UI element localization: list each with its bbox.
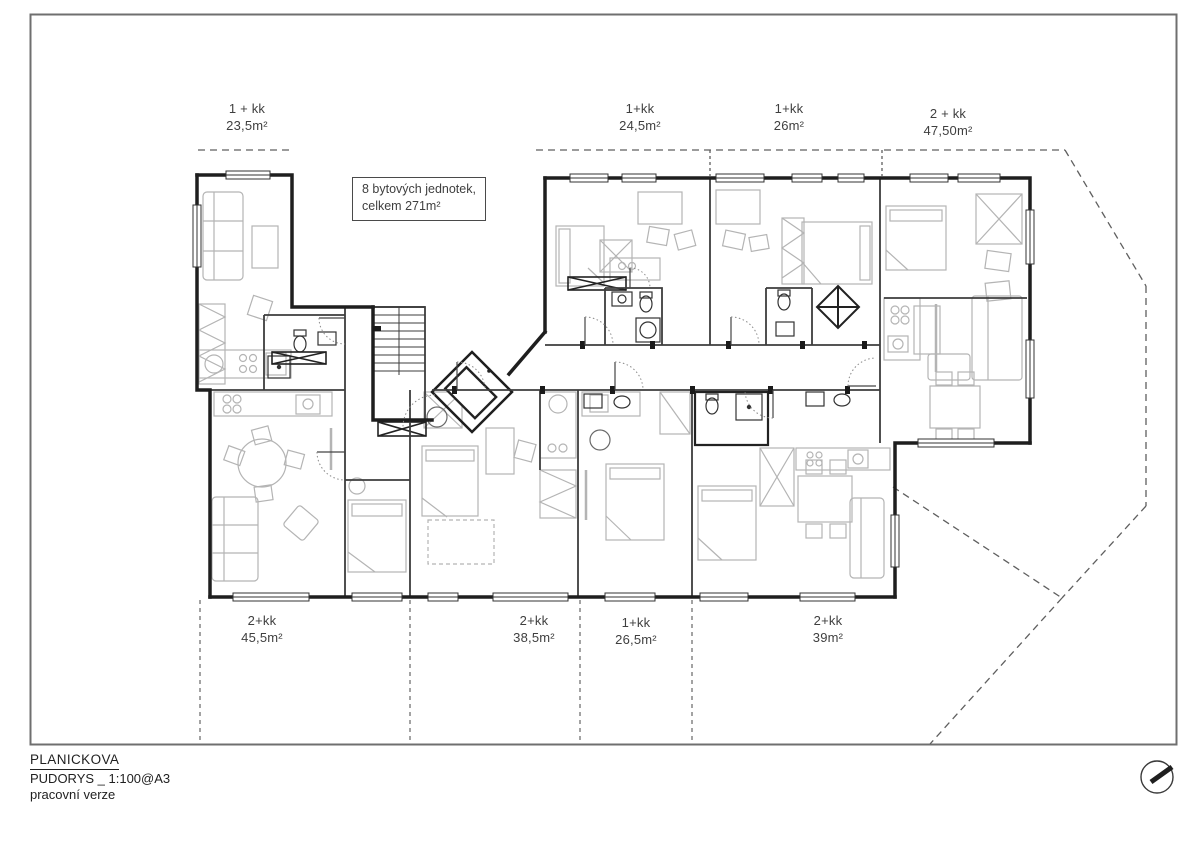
unit-area: 39m²: [813, 629, 843, 646]
unit-label-bottom-4: 2+kk 39m²: [813, 612, 843, 646]
unit-label-top-4: 2 + kk 47,50m²: [923, 105, 972, 139]
lot-boundary-lines: [198, 150, 1146, 744]
unit-area: 26m²: [774, 117, 804, 134]
unit-type: 1+kk: [619, 100, 661, 117]
project-name: PLANICKOVA: [30, 752, 119, 770]
unit-area: 47,50m²: [923, 122, 972, 139]
unit-label-bottom-2: 2+kk 38,5m²: [513, 612, 555, 646]
unit-type: 2+kk: [241, 612, 283, 629]
unit-label-bottom-1: 2+kk 45,5m²: [241, 612, 283, 646]
unit-label-top-2: 1+kk 24,5m²: [619, 100, 661, 134]
version-note: pracovní verze: [30, 787, 170, 803]
total-area-note: 8 bytových jednotek, celkem 271m²: [352, 177, 486, 221]
unit-type: 1 + kk: [226, 100, 268, 117]
unit-area: 23,5m²: [226, 117, 268, 134]
shaft-boxes: [272, 277, 859, 436]
unit-area: 24,5m²: [619, 117, 661, 134]
unit-type: 2+kk: [513, 612, 555, 629]
unit-type: 2 + kk: [923, 105, 972, 122]
floor-plan-drawing: [0, 0, 1191, 842]
unit-label-top-1: 1 + kk 23,5m²: [226, 100, 268, 134]
unit-label-bottom-3: 1+kk 26,5m²: [615, 614, 657, 648]
unit-label-top-3: 1+kk 26m²: [774, 100, 804, 134]
title-block: PLANICKOVA PUDORYS _ 1:100@A3 pracovní v…: [30, 752, 170, 803]
unit-area: 26,5m²: [615, 631, 657, 648]
sanitary-fixtures: [268, 290, 850, 420]
staircase: [373, 307, 425, 420]
unit-type: 2+kk: [813, 612, 843, 629]
north-arrow-icon: [1141, 761, 1173, 793]
unit-area: 38,5m²: [513, 629, 555, 646]
unit-area: 45,5m²: [241, 629, 283, 646]
unit-type: 1+kk: [774, 100, 804, 117]
drawing-name: PUDORYS _ 1:100@A3: [30, 771, 170, 787]
drawing-sheet: { "annotation_box": { "line1": "8 bytový…: [0, 0, 1191, 842]
total-area-note-line1: 8 bytových jednotek,: [362, 181, 476, 198]
total-area-note-line2: celkem 271m²: [362, 198, 476, 215]
unit-type: 1+kk: [615, 614, 657, 631]
